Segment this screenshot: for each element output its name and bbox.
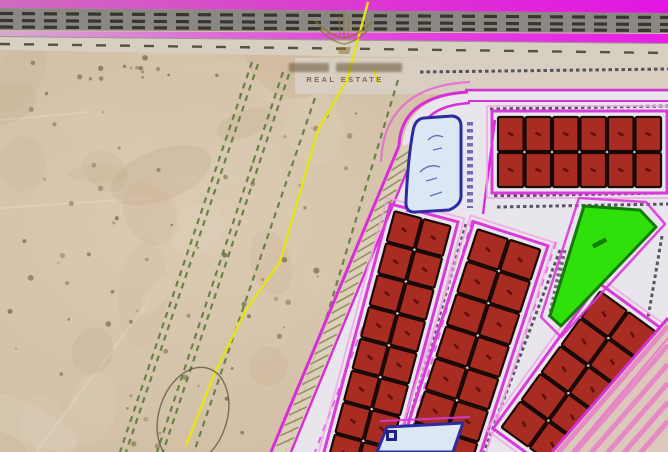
desert-shrub [98, 186, 103, 191]
desert-shrub [143, 417, 148, 422]
desert-shrub [52, 122, 56, 126]
desert-shrub [344, 166, 348, 170]
desert-shrub [68, 318, 71, 321]
desert-shrub [231, 367, 234, 370]
desert-shrub [129, 394, 132, 397]
desert-shrub [261, 278, 264, 281]
desert-shrub [126, 407, 129, 410]
desert-shrub [60, 253, 65, 258]
desert-shrub [118, 146, 121, 149]
desert-shrub [136, 309, 139, 312]
desert-shrub [105, 321, 111, 327]
desert-shrub [89, 77, 92, 80]
desert-shrub [31, 61, 36, 66]
plot-service-north [406, 116, 461, 212]
desert-shrub [131, 441, 136, 446]
desert-shrub [99, 76, 104, 81]
desert-shrub [355, 112, 357, 114]
desert-shrub [135, 66, 138, 69]
desert-shrub [167, 74, 170, 77]
desert-shrub [138, 66, 143, 71]
desert-shrub [69, 201, 74, 206]
desert-shrub [129, 320, 133, 324]
desert-shrub [171, 224, 173, 226]
desert-shrub [186, 314, 190, 318]
desert-shrub [247, 314, 251, 318]
desert-shrub [317, 276, 319, 278]
desert-shrub [240, 431, 244, 435]
plan-canvas [0, 0, 668, 452]
desert-shrub [91, 163, 96, 168]
plot-block-block-north [487, 106, 668, 198]
desert-shrub [141, 76, 144, 79]
masterplan-map-image: REAL ESTATE [0, 0, 668, 452]
desert-shrub [197, 247, 199, 249]
desert-shrub [285, 300, 291, 306]
desert-shrub [111, 290, 115, 294]
desert-shrub [156, 67, 160, 71]
desert-shrub [102, 111, 105, 114]
desert-shrub [98, 66, 103, 71]
desert-shrub [123, 65, 126, 68]
desert-shrub [215, 73, 219, 77]
desert-shrub [284, 135, 287, 138]
desert-shrub [15, 348, 17, 350]
desert-shrub [22, 239, 26, 243]
desert-shrub [303, 206, 306, 209]
desert-shrub [112, 221, 115, 224]
desert-shrub [163, 349, 168, 354]
desert-shrub [43, 178, 46, 181]
desert-shrub [59, 372, 63, 376]
desert-shrub [298, 184, 301, 187]
desert-shrub [156, 168, 160, 172]
desert-shrub [277, 334, 282, 339]
plot-marker-inner [389, 433, 394, 438]
desert-shrub [274, 297, 279, 302]
desert-shrub [28, 275, 34, 281]
desert-shrub [347, 133, 353, 139]
desert-shrub [242, 302, 247, 307]
desert-shrub [145, 258, 149, 262]
desert-shrub [197, 385, 199, 387]
desert-shrub [65, 281, 69, 285]
desert-shrub [115, 216, 119, 220]
desert-shrub [45, 92, 49, 96]
desert-shrub [283, 326, 285, 328]
desert-shrub [8, 309, 13, 314]
desert-shrub [57, 262, 59, 264]
desert-shrub [313, 268, 319, 274]
desert-shrub [29, 107, 34, 112]
desert-shrub [141, 70, 144, 73]
desert-shrub [158, 432, 161, 435]
desert-shrub [130, 67, 133, 70]
desert-shrub [223, 175, 228, 180]
desert-shrub [87, 252, 91, 256]
desert-shrub [143, 56, 148, 61]
desert-shrub [77, 74, 82, 79]
